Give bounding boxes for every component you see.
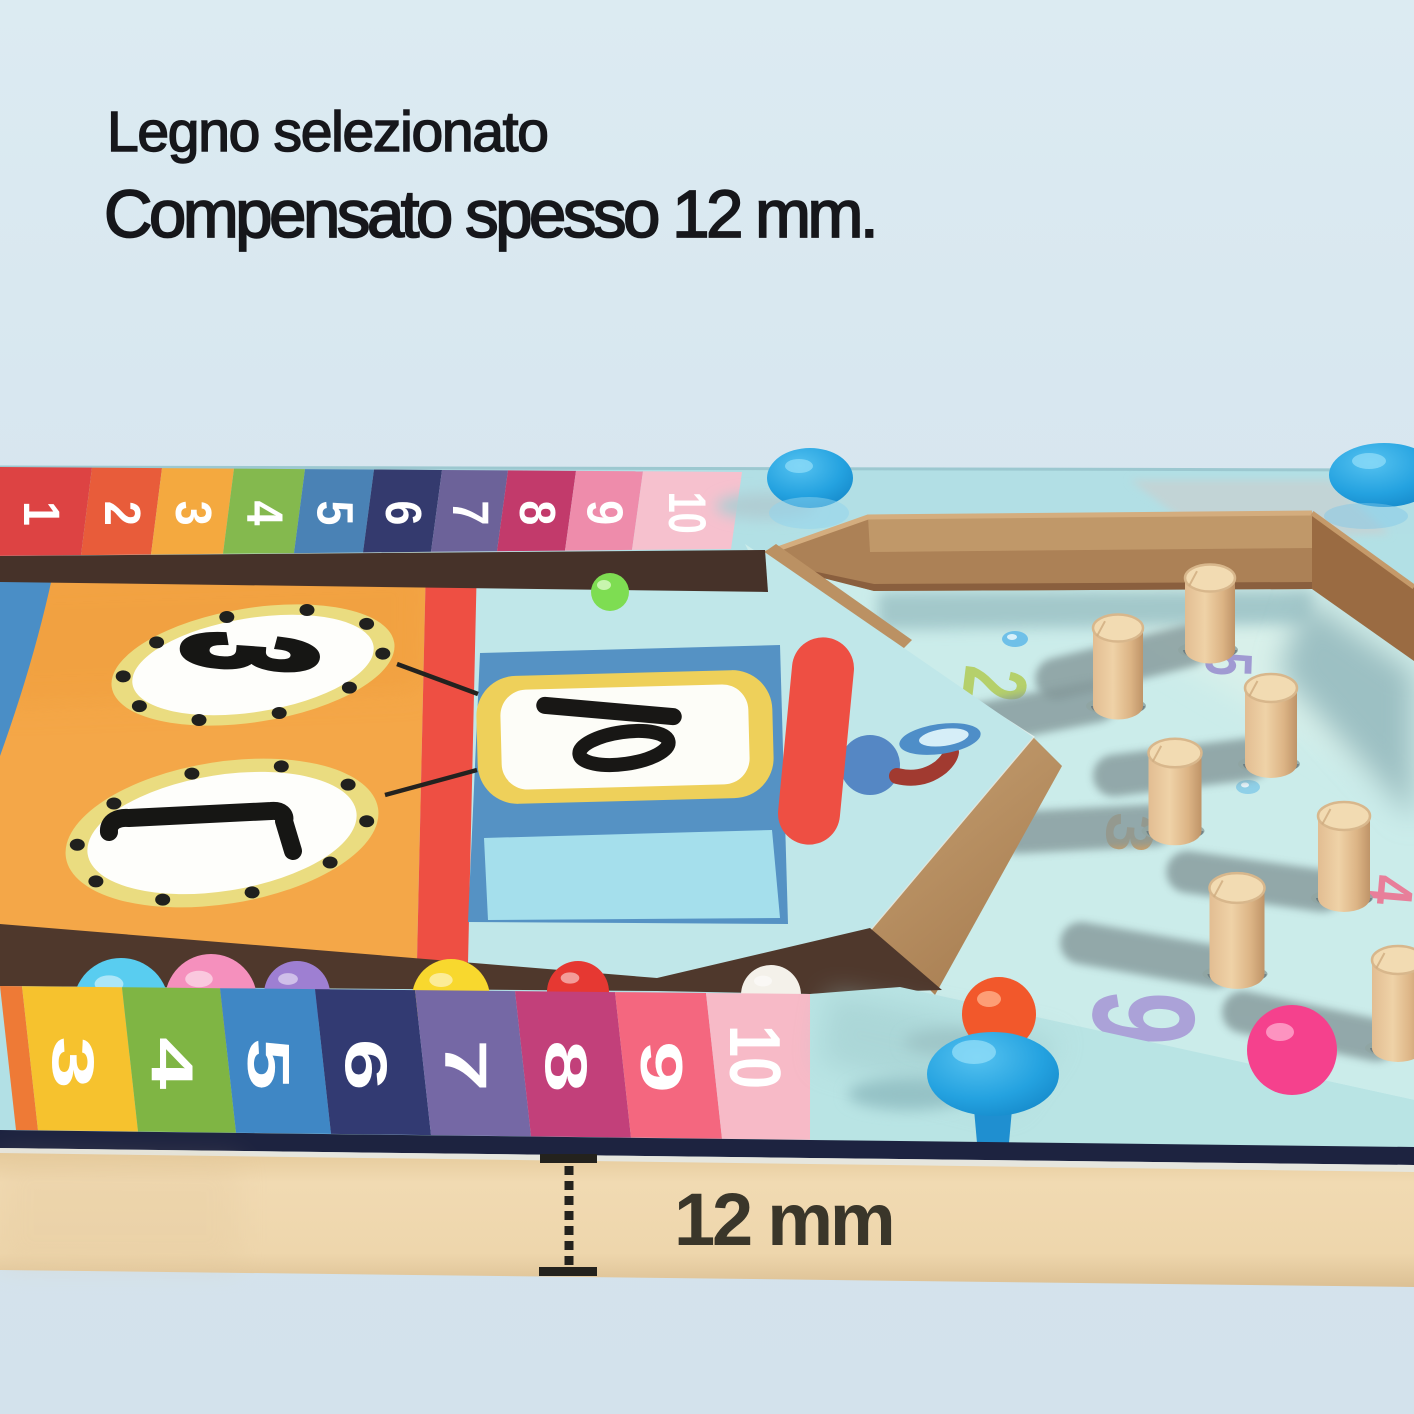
svg-text:3: 3 [164,501,222,526]
svg-text:8: 8 [533,1040,600,1092]
svg-text:9: 9 [576,500,634,525]
svg-text:7: 7 [441,500,499,525]
svg-text:Compensato spesso 12 mm.: Compensato spesso 12 mm. [104,177,875,252]
svg-text:7: 7 [433,1039,500,1091]
svg-text:Legno selezionato: Legno selezionato [107,100,548,164]
svg-text:8: 8 [508,500,566,525]
svg-text:5: 5 [235,1038,302,1090]
svg-text:4: 4 [236,501,294,526]
svg-text:2: 2 [93,501,151,526]
svg-text:3: 3 [40,1036,107,1088]
svg-text:10: 10 [715,1025,796,1089]
svg-text:1: 1 [12,501,70,526]
svg-text:12 mm: 12 mm [674,1178,892,1261]
svg-text:6: 6 [374,501,432,526]
svg-text:6: 6 [333,1039,400,1091]
svg-text:9: 9 [628,1041,695,1093]
svg-text:5: 5 [306,501,364,526]
svg-text:10: 10 [658,492,718,534]
svg-text:4: 4 [139,1037,206,1090]
